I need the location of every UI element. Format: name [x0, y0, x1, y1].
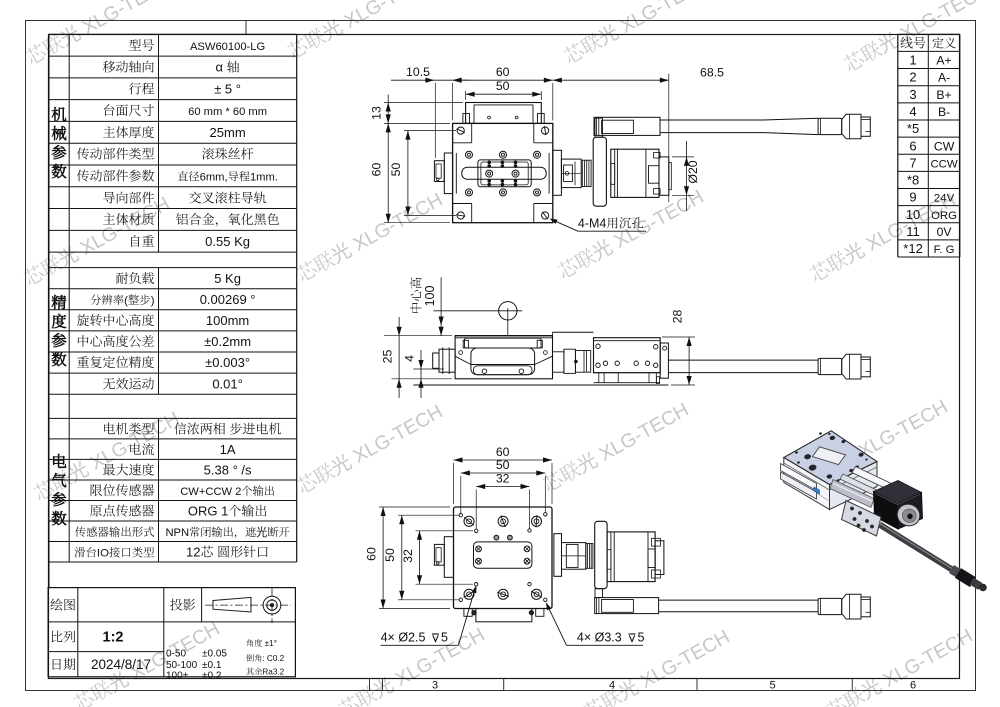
svg-text:型号: 型号 [128, 35, 154, 54]
svg-text:CW: CW [934, 139, 955, 153]
svg-text:信浓两相 步进电机: 信浓两相 步进电机 [174, 418, 282, 437]
svg-text:交叉滚柱导轨: 交叉滚柱导轨 [189, 187, 267, 206]
svg-text:中心高: 中心高 [406, 277, 424, 315]
svg-text:ORG 1个输出: ORG 1个输出 [188, 500, 267, 519]
svg-text:100mm: 100mm [206, 310, 249, 329]
svg-text:6: 6 [910, 680, 916, 692]
svg-text:数: 数 [51, 160, 67, 182]
svg-text:32: 32 [401, 549, 415, 563]
svg-text:传感器输出形式: 传感器输出形式 [75, 524, 155, 540]
svg-text:3: 3 [432, 680, 438, 692]
svg-text:α 轴: α 轴 [216, 57, 240, 76]
svg-text:0.55 Kg: 0.55 Kg [205, 231, 250, 250]
svg-text:定义: 定义 [932, 34, 956, 51]
svg-text:100+: 100+ [166, 671, 189, 682]
svg-text:滚珠丝杆: 滚珠丝杆 [202, 144, 254, 163]
svg-text:5 Kg: 5 Kg [214, 268, 241, 287]
svg-text:F. G: F. G [934, 244, 955, 256]
svg-text:10.5: 10.5 [406, 65, 430, 79]
svg-text:60: 60 [496, 65, 510, 79]
svg-text:传动部件参数: 传动部件参数 [76, 165, 154, 184]
svg-text:数: 数 [51, 507, 67, 529]
svg-text:*5: *5 [907, 121, 919, 136]
svg-text:B-: B- [938, 105, 950, 119]
svg-text:25mm: 25mm [210, 122, 246, 141]
svg-text:5: 5 [441, 631, 448, 645]
svg-text:重复定位精度: 重复定位精度 [76, 352, 154, 371]
svg-text:线号: 线号 [900, 32, 926, 51]
svg-text:NPN常闭输出，遮光断开: NPN常闭输出，遮光断开 [165, 524, 289, 540]
svg-text:±0.2mm: ±0.2mm [204, 331, 251, 350]
svg-text:50: 50 [383, 548, 397, 562]
svg-text:0.00269 °: 0.00269 ° [200, 289, 256, 308]
svg-text:比列: 比列 [50, 627, 76, 646]
svg-text:6: 6 [909, 138, 916, 153]
svg-text:A-: A- [938, 71, 950, 85]
svg-text:传动部件类型: 传动部件类型 [76, 144, 154, 163]
svg-text:1A: 1A [220, 439, 236, 458]
svg-text:自重: 自重 [128, 231, 154, 250]
svg-text:原点传感器: 原点传感器 [89, 500, 154, 519]
svg-text:4-M4用沉孔: 4-M4用沉孔 [578, 214, 644, 232]
svg-text:旋转中心高度: 旋转中心高度 [76, 310, 154, 329]
svg-text:4: 4 [909, 104, 916, 119]
svg-text:台面尺寸: 台面尺寸 [102, 100, 154, 119]
svg-text:行程: 行程 [128, 78, 154, 97]
svg-text:B+: B+ [936, 88, 951, 102]
svg-text:铝合金，氧化黑色: 铝合金，氧化黑色 [176, 209, 280, 228]
svg-text:60: 60 [496, 445, 510, 459]
svg-text:0V: 0V [937, 225, 953, 239]
svg-text:1:2: 1:2 [103, 630, 124, 646]
svg-text:耐负载: 耐负载 [115, 268, 154, 287]
svg-text:4× Ø2.5: 4× Ø2.5 [381, 631, 426, 645]
svg-text:3: 3 [909, 87, 916, 102]
svg-text:数: 数 [51, 348, 67, 370]
svg-text:68.5: 68.5 [700, 66, 724, 80]
svg-text:32: 32 [496, 472, 510, 486]
svg-text:角度 ±1°: 角度 ±1° [246, 638, 277, 649]
svg-text:*12: *12 [903, 241, 923, 256]
svg-text:CW+CCW 2个输出: CW+CCW 2个输出 [180, 483, 275, 499]
svg-text:1: 1 [909, 53, 916, 68]
svg-text:13: 13 [370, 106, 384, 120]
svg-text:限位传感器: 限位传感器 [89, 480, 154, 499]
svg-text:7: 7 [909, 155, 916, 170]
svg-text:4× Ø3.3: 4× Ø3.3 [577, 631, 622, 645]
svg-text:其余Ra3.2: 其余Ra3.2 [246, 667, 285, 678]
svg-text:投影: 投影 [170, 595, 196, 614]
svg-text:电流: 电流 [128, 439, 154, 458]
svg-text:主体材质: 主体材质 [102, 209, 154, 228]
svg-text:直径6mm,导程1mm.: 直径6mm,导程1mm. [177, 168, 278, 184]
svg-text:导向部件: 导向部件 [102, 187, 154, 206]
svg-text:倒角: C0.2: 倒角: C0.2 [246, 653, 285, 664]
svg-text:移动轴向: 移动轴向 [102, 57, 154, 76]
svg-text:5: 5 [769, 680, 775, 692]
svg-text:±0.2: ±0.2 [202, 671, 222, 682]
svg-text:电机类型: 电机类型 [102, 418, 154, 437]
svg-text:±0.1: ±0.1 [202, 660, 222, 671]
svg-text:A+: A+ [936, 54, 951, 68]
svg-text:0-50: 0-50 [166, 649, 186, 660]
svg-text:50: 50 [389, 163, 403, 177]
svg-text:*8: *8 [907, 173, 919, 188]
svg-text:50: 50 [496, 458, 510, 472]
svg-text:60 mm * 60 mm: 60 mm * 60 mm [188, 103, 267, 119]
svg-text:11: 11 [906, 224, 920, 239]
svg-text:无效运动: 无效运动 [102, 373, 154, 392]
svg-text:2024/8/17: 2024/8/17 [91, 657, 151, 672]
svg-text:4: 4 [609, 680, 615, 692]
svg-text:50: 50 [496, 79, 510, 93]
svg-text:滑台IO接口类型: 滑台IO接口类型 [74, 544, 154, 560]
svg-text:5: 5 [638, 631, 645, 645]
svg-text:28: 28 [670, 310, 684, 324]
svg-text:Ø20: Ø20 [686, 160, 700, 183]
svg-text:9: 9 [909, 190, 916, 205]
svg-text:4: 4 [402, 355, 416, 362]
svg-text:中心高度公差: 中心高度公差 [76, 331, 154, 350]
svg-text:12芯 圆形针口: 12芯 圆形针口 [186, 541, 269, 560]
svg-text:ORG: ORG [931, 210, 957, 222]
svg-text:25: 25 [381, 350, 395, 364]
svg-text:绘图: 绘图 [50, 595, 76, 614]
svg-text:100: 100 [423, 286, 437, 307]
svg-text:主体厚度: 主体厚度 [102, 122, 154, 141]
svg-text:最大速度: 最大速度 [102, 459, 154, 478]
svg-text:CCW: CCW [930, 158, 957, 170]
svg-text:分辨率(整步): 分辨率(整步) [90, 292, 155, 308]
svg-text:5.38 ° /s: 5.38 ° /s [204, 459, 252, 478]
svg-text:60: 60 [370, 163, 384, 177]
svg-text:50-100: 50-100 [166, 660, 198, 671]
svg-text:24V: 24V [934, 193, 955, 205]
svg-text:±0.05: ±0.05 [202, 649, 227, 660]
svg-text:ASW60100-LG: ASW60100-LG [190, 38, 265, 54]
svg-text:± 5 °: ± 5 ° [214, 78, 241, 97]
svg-text:60: 60 [364, 547, 378, 561]
svg-text:±0.003°: ±0.003° [205, 352, 250, 371]
svg-text:10: 10 [906, 207, 920, 222]
svg-text:日期: 日期 [50, 654, 76, 673]
svg-text:0.01°: 0.01° [212, 373, 243, 392]
svg-text:2: 2 [909, 70, 916, 85]
